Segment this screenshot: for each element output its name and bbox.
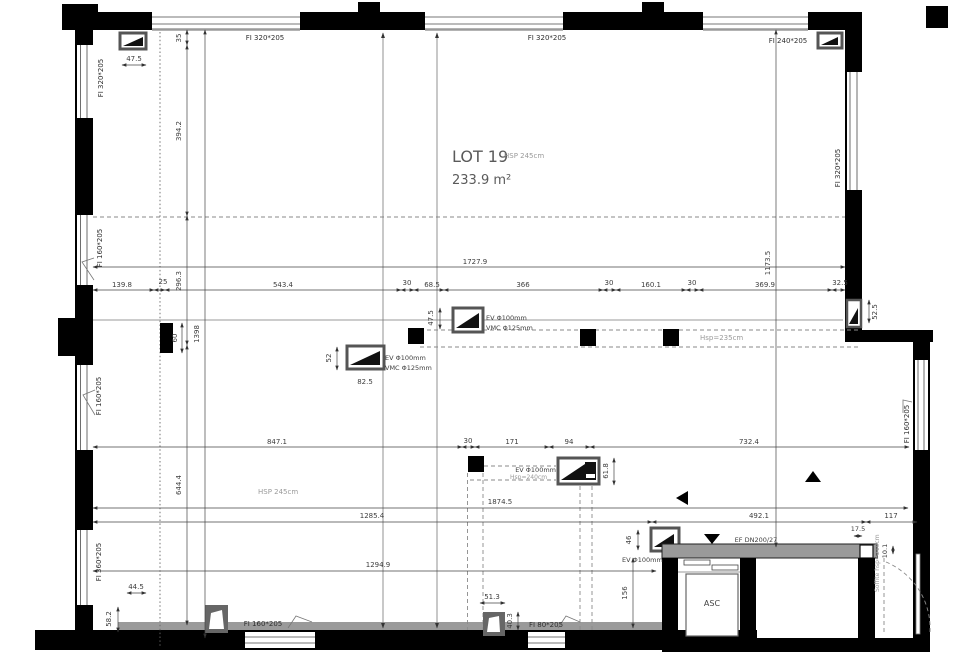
window-top-left bbox=[152, 12, 300, 30]
dim: 644.4 bbox=[175, 474, 183, 495]
window-left-top bbox=[77, 45, 93, 118]
dim: 47.5 bbox=[126, 55, 142, 63]
wall-niche bbox=[860, 545, 873, 558]
window-label: FI 160*205 bbox=[95, 377, 103, 416]
window-left-mid2 bbox=[77, 365, 95, 450]
dim: 30 bbox=[605, 279, 614, 287]
elevator-block bbox=[662, 544, 930, 650]
exterior-pilaster bbox=[58, 318, 75, 356]
window-label: FI 240*205 bbox=[769, 37, 808, 45]
flue-bottom-left bbox=[205, 605, 228, 633]
floor-plan: 1727.9 139.8 25 543.4 30 68.5 366 30 160… bbox=[0, 0, 960, 653]
top-wall-column bbox=[358, 2, 380, 30]
duct-mid-upper bbox=[453, 308, 483, 332]
column bbox=[663, 329, 679, 346]
dim: 847.1 bbox=[267, 438, 287, 446]
column bbox=[468, 456, 484, 472]
top-wall-column bbox=[642, 2, 664, 30]
dim: 1874.5 bbox=[488, 498, 513, 506]
dim: 82.5 bbox=[357, 378, 373, 386]
window-left-bottom bbox=[77, 530, 93, 605]
window-top-mid bbox=[425, 12, 563, 30]
ceiling-height-label: HSP 245cm bbox=[258, 488, 298, 496]
dim: 732.4 bbox=[739, 438, 760, 446]
duct-label: VMC Φ125mm bbox=[486, 324, 533, 332]
window-label: FI 160*205 bbox=[244, 620, 283, 628]
dim: 30 bbox=[464, 437, 473, 445]
dim: 68.5 bbox=[424, 281, 440, 289]
window-label: FI 320*205 bbox=[246, 34, 285, 42]
duct-label: EV Φ100mm bbox=[622, 556, 663, 564]
dim: 44.5 bbox=[128, 583, 144, 591]
window-label: FI 360*205 bbox=[95, 543, 103, 582]
drain-label: EF DN200/27 bbox=[735, 536, 778, 544]
dim: 32.5 bbox=[832, 279, 848, 287]
dim: 47.5 bbox=[427, 310, 435, 326]
arrow-up-icon bbox=[805, 471, 821, 482]
window-right-top bbox=[847, 72, 862, 190]
dim: 52 bbox=[325, 354, 333, 363]
dim: 10.1 bbox=[881, 544, 889, 558]
dim: 51.3 bbox=[484, 593, 500, 601]
window-label: FI 320*205 bbox=[97, 59, 105, 98]
dim: 1294.9 bbox=[366, 561, 391, 569]
ceiling-height-label: Hsp=235cm bbox=[700, 334, 743, 342]
dim: 139.8 bbox=[112, 281, 132, 289]
dim: 30 bbox=[688, 279, 697, 287]
soffit-label: Soffite hsp=210cm bbox=[874, 534, 881, 592]
dim-overall-height: 1173.5 bbox=[764, 251, 772, 276]
dim: 366 bbox=[516, 281, 530, 289]
duct-label: EV Φ100mm bbox=[385, 354, 426, 362]
window-label: FI 320*205 bbox=[528, 34, 567, 42]
window-label: FI 160*205 bbox=[96, 229, 104, 268]
dim: 492.1 bbox=[749, 512, 769, 520]
dim: 117 bbox=[884, 512, 897, 520]
lot-title: LOT 19 bbox=[452, 147, 508, 166]
duct-mid-lower bbox=[347, 346, 384, 369]
dim: 17.5 bbox=[851, 525, 865, 533]
dim: 543.4 bbox=[273, 281, 294, 289]
dim: 1285.4 bbox=[360, 512, 385, 520]
dim: 369.9 bbox=[755, 281, 775, 289]
duct-label: VMC Φ125mm bbox=[385, 364, 432, 372]
column bbox=[408, 328, 424, 344]
elevator-cab bbox=[678, 560, 740, 636]
floor-plan-drawing: 1727.9 139.8 25 543.4 30 68.5 366 30 160… bbox=[0, 0, 960, 653]
window-label: FI 80*205 bbox=[529, 621, 563, 629]
duct-center bbox=[558, 458, 599, 484]
interior-columns bbox=[160, 323, 679, 472]
dim: 296.3 bbox=[175, 271, 183, 291]
duct-label: EV Φ100mm bbox=[486, 314, 527, 322]
window-left-mid1 bbox=[77, 215, 94, 285]
window-top-right bbox=[703, 12, 808, 30]
detached-column bbox=[926, 6, 948, 28]
soffit-wall bbox=[662, 544, 877, 558]
dim: 58.2 bbox=[105, 611, 113, 627]
dim: 35 bbox=[175, 34, 183, 43]
arrow-left-icon bbox=[676, 491, 688, 505]
lot-ceiling-height: HSP 245cm bbox=[504, 152, 544, 160]
dim: 1398 bbox=[193, 325, 201, 343]
arrow-down-icon bbox=[704, 534, 720, 544]
dim: 61.8 bbox=[602, 463, 610, 479]
dim: 171 bbox=[505, 438, 518, 446]
window-label: FI 160*205 bbox=[903, 405, 911, 444]
ceiling-height-label: Hsp=240cm bbox=[510, 474, 547, 481]
plan-labels: LOT 19 HSP 245cm 233.9 m² Hsp=235cm HSP … bbox=[258, 147, 881, 608]
dim: 160.1 bbox=[641, 281, 661, 289]
duct-right-wall bbox=[847, 300, 861, 327]
duct-label: EV Φ100mm bbox=[515, 466, 556, 474]
dim: 25 bbox=[159, 278, 168, 286]
window-label: FI 320*205 bbox=[834, 149, 842, 188]
dim-overall-width: 1727.9 bbox=[463, 258, 488, 266]
duct-top-left bbox=[120, 33, 146, 49]
dim: 94 bbox=[565, 438, 574, 446]
lot-area: 233.9 m² bbox=[452, 173, 511, 188]
dim: 156 bbox=[621, 586, 629, 600]
flue-bottom-mid bbox=[483, 612, 505, 636]
column bbox=[580, 329, 596, 346]
dim: 40.3 bbox=[506, 613, 514, 629]
dim: 394.2 bbox=[175, 121, 183, 141]
dim: 46 bbox=[625, 535, 633, 544]
dim: 60 bbox=[171, 334, 179, 343]
dim: 52.5 bbox=[871, 304, 879, 320]
elevator-label: ASC bbox=[704, 599, 721, 608]
duct-top-right bbox=[818, 33, 842, 48]
dim: 30 bbox=[403, 279, 412, 287]
